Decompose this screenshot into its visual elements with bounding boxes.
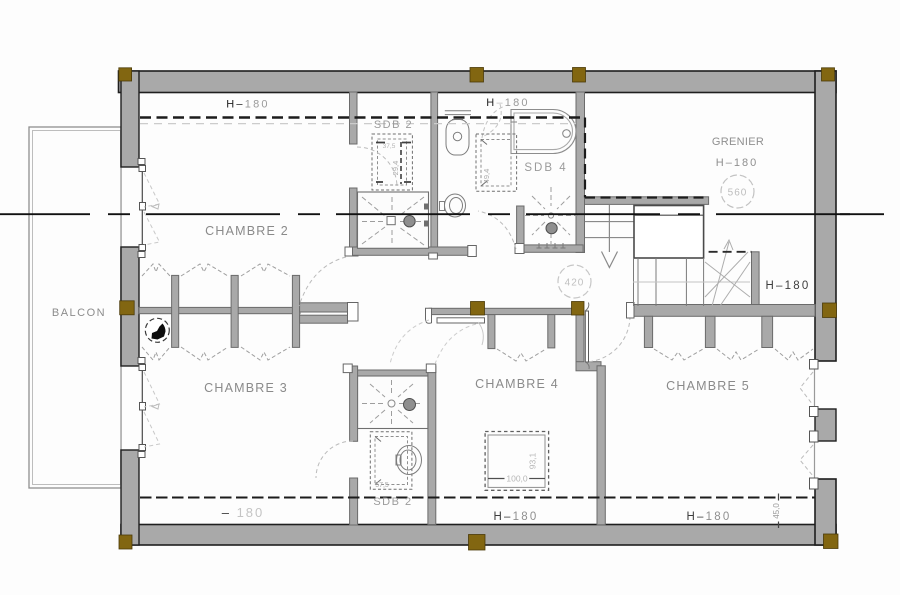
- svg-text:57,5: 57,5: [375, 482, 389, 489]
- svg-text:560: 560: [728, 188, 748, 199]
- svg-text:BALCON: BALCON: [52, 307, 106, 319]
- svg-text:SDB 4: SDB 4: [524, 162, 567, 174]
- svg-text:SDB 2: SDB 2: [374, 119, 413, 131]
- svg-text:H–180: H–180: [494, 511, 539, 523]
- svg-text:H–180: H–180: [226, 99, 269, 111]
- svg-text:GRENIER: GRENIER: [712, 136, 764, 148]
- svg-text:100,0: 100,0: [506, 474, 528, 484]
- svg-text:45,0: 45,0: [772, 503, 781, 519]
- svg-text:37,5: 37,5: [383, 143, 396, 150]
- svg-text:93,1: 93,1: [528, 452, 538, 469]
- svg-text:H–180: H–180: [687, 511, 732, 523]
- svg-text:CHAMBRE 3: CHAMBRE 3: [204, 381, 288, 395]
- svg-text:CHAMBRE 4: CHAMBRE 4: [475, 377, 559, 391]
- svg-text:CHAMBRE 2: CHAMBRE 2: [205, 224, 289, 238]
- svg-text:H–180: H–180: [766, 280, 811, 292]
- svg-text:– 180: – 180: [222, 505, 265, 520]
- svg-text:49,4: 49,4: [482, 169, 491, 184]
- svg-text:420: 420: [565, 278, 585, 289]
- svg-text:SDB 2: SDB 2: [373, 496, 412, 508]
- svg-text:H–180: H–180: [486, 97, 529, 109]
- svg-text:CHAMBRE 5: CHAMBRE 5: [666, 379, 750, 393]
- svg-text:H–180: H–180: [716, 157, 758, 169]
